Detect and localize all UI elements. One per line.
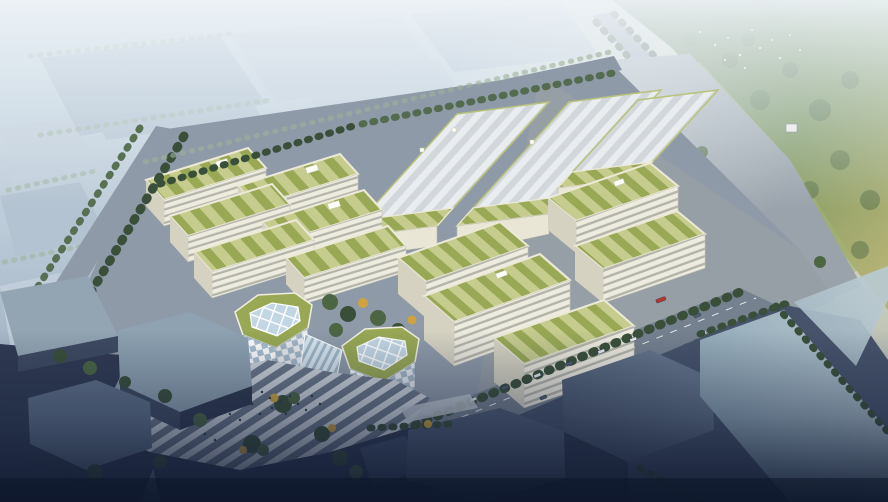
aerial-rendering-canvas bbox=[0, 0, 888, 502]
scene-svg bbox=[0, 0, 888, 502]
bottom-vignette bbox=[0, 330, 888, 502]
rooftop-unit bbox=[452, 128, 456, 132]
bottom-edge-shadow bbox=[0, 478, 888, 502]
rooftop-unit bbox=[420, 148, 424, 152]
rooftop-unit bbox=[530, 140, 534, 144]
